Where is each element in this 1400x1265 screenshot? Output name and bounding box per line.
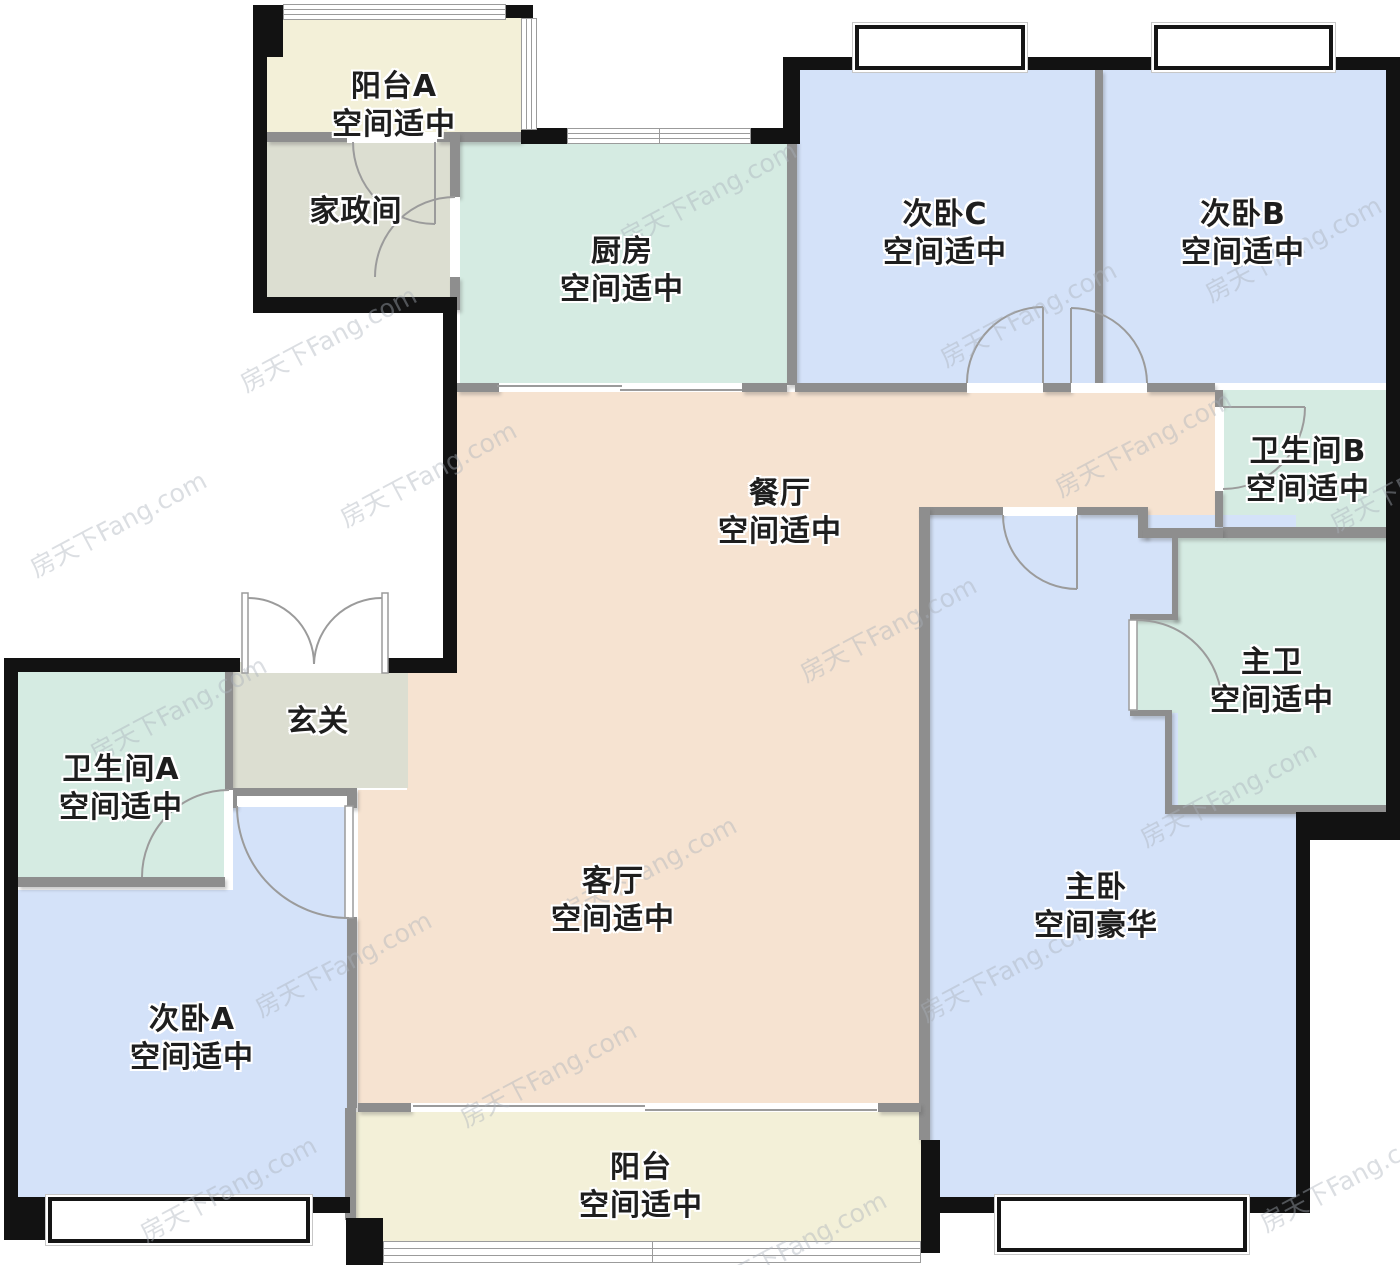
wall-interior [742,383,787,392]
entry-door-arc [248,598,314,664]
room-name: 主卧 [1034,869,1158,907]
sliding-door-opening [499,383,742,392]
room-grade: 空间适中 [1246,471,1370,509]
wall-interior [1095,70,1103,383]
window [1154,25,1333,70]
kitchen-sliding-door [497,386,742,390]
room-bedroom-a [233,798,347,890]
wall-interior [795,383,967,392]
window [855,25,1025,70]
room-name: 阳台 [579,1149,703,1187]
door-opening [450,197,460,277]
room-grade: 空间适中 [579,1187,703,1225]
wall-exterior [443,310,457,385]
room-label-bedroom-c: 次卧C 空间适中 [883,196,1007,272]
entry-door-jamb [242,593,248,673]
room-name: 玄关 [287,703,349,741]
room-label-bathroom-b: 卫生间B 空间适中 [1246,433,1370,509]
wall-exterior [346,1218,383,1265]
window [521,18,537,130]
wall-interior [787,140,797,385]
wall-exterior [921,1140,940,1253]
room-name: 家政间 [310,193,403,231]
room-grade: 空间适中 [883,234,1007,272]
wall-exterior [521,128,567,144]
wall-interior [457,383,499,392]
room-grade: 空间适中 [718,513,842,551]
room-name: 餐厅 [718,475,842,513]
room-living [407,672,919,790]
room-grade: 空间适中 [560,271,684,309]
room-label-dining: 餐厅 空间适中 [718,475,842,551]
floor-plan: 房天下Fang.com房天下Fang.com房天下Fang.com房天下Fang… [0,0,1400,1265]
wall-interior [1215,491,1223,527]
wall-exterior [443,383,457,673]
entry-door-arc [314,598,382,664]
room-name: 客厅 [551,863,675,901]
room-grade: 空间豪华 [1034,907,1158,945]
wall-interior [1043,383,1071,392]
room-living [358,790,919,1103]
wall-exterior [506,5,533,18]
wall-interior [225,788,237,808]
room-label-bedroom-b: 次卧B 空间适中 [1181,196,1305,272]
room-grade: 空间适中 [1210,682,1334,720]
wall-exterior [310,1197,350,1213]
wall-interior [237,788,347,797]
window [48,1197,310,1243]
wall-interior [18,877,225,887]
watermark-text: 房天下Fang.com [23,461,212,585]
room-name: 主卫 [1210,644,1334,682]
wall-interior [1215,390,1223,407]
wall-exterior [800,57,855,70]
room-name: 卫生间B [1246,433,1370,471]
room-name: 卫生间A [59,751,183,789]
wall-interior [1165,716,1172,805]
room-label-master-bath: 主卫 空间适中 [1210,644,1334,720]
wall-interior [358,1103,411,1112]
room-label-hallway: 玄关 [287,703,349,741]
room-master-bath [1137,620,1178,713]
wall-interior [1172,538,1178,620]
wall-exterior [253,5,283,57]
balcony-sliding-door [413,1106,877,1110]
window [567,128,751,144]
room-name: 次卧C [883,196,1007,234]
wall-exterior [1333,57,1386,70]
sliding-door-opening [411,1103,878,1112]
room-label-bedroom-a: 次卧A 空间适中 [130,1001,254,1077]
room-grade: 空间适中 [59,789,183,827]
wall-exterior [783,57,800,144]
wall-interior [1143,528,1223,538]
room-label-housekeeping: 家政间 [310,193,403,231]
room-name: 厨房 [560,233,684,271]
wall-interior [1130,614,1178,620]
room-dining [457,507,919,672]
wall-exterior [253,297,457,313]
wall-exterior [1245,1197,1310,1213]
wall-interior [347,917,357,1108]
room-label-bathroom-a: 卫生间A 空间适中 [59,751,183,827]
wall-exterior [4,658,240,672]
room-label-master-bedroom: 主卧 空间豪华 [1034,869,1158,945]
wall-exterior [940,1197,1000,1213]
wall-interior [919,507,1003,515]
window [383,1241,921,1263]
room-label-balcony-a: 阳台A 空间适中 [332,68,456,144]
wall-interior [919,507,930,1140]
wall-interior [1147,383,1215,392]
wall-interior [347,788,357,808]
wall-interior [1223,527,1386,538]
wall-exterior [4,658,18,1213]
room-label-living: 客厅 空间适中 [551,863,675,939]
room-label-balcony: 阳台 空间适中 [579,1149,703,1225]
wall-exterior [1025,57,1154,70]
window [997,1197,1247,1252]
room-grade: 空间适中 [1181,234,1305,272]
room-grade: 空间适中 [332,106,456,144]
room-name: 次卧A [130,1001,254,1039]
room-label-kitchen: 厨房 空间适中 [560,233,684,309]
window [283,4,506,20]
room-grade: 空间适中 [130,1039,254,1077]
wall-exterior [1310,812,1400,840]
room-name: 阳台A [332,68,456,106]
wall-interior [1077,507,1143,515]
wall-exterior [1386,57,1400,812]
room-grade: 空间适中 [551,901,675,939]
wall-interior [878,1103,921,1112]
wall-interior [225,662,233,788]
wall-exterior [1296,812,1310,1213]
room-name: 次卧B [1181,196,1305,234]
